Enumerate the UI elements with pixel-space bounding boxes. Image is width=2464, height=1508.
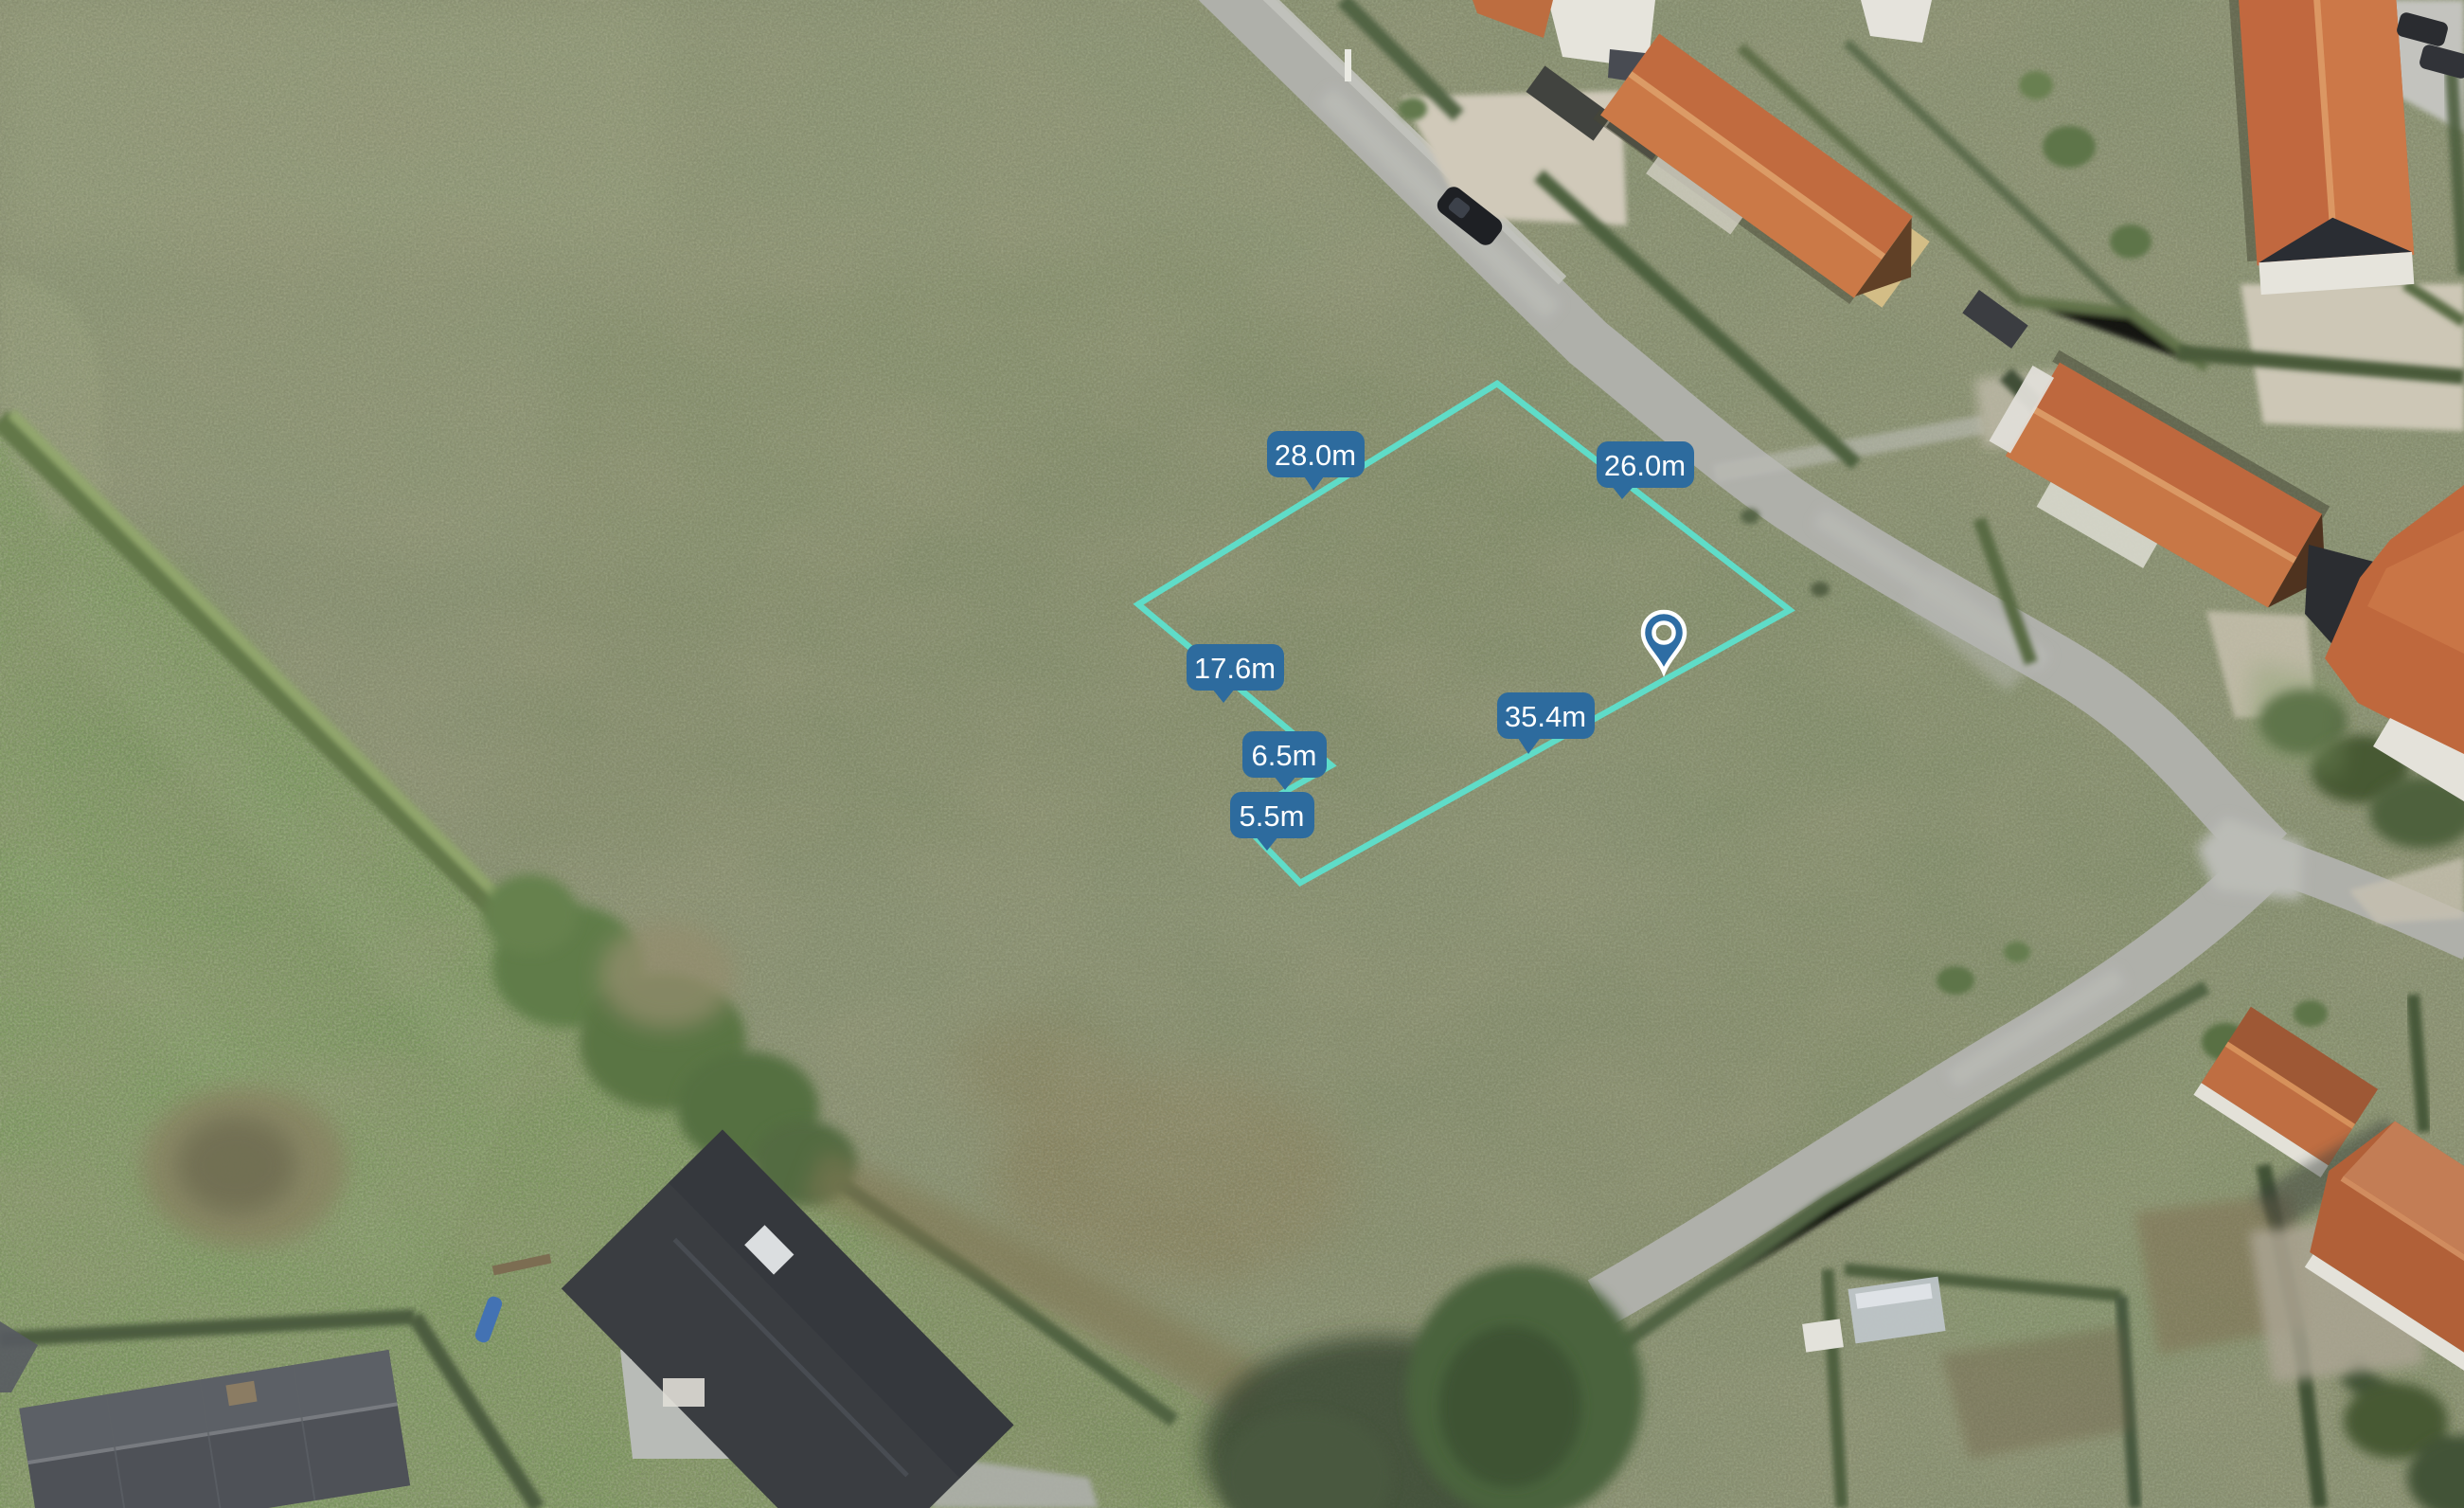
svg-text:17.6m: 17.6m bbox=[1194, 652, 1276, 685]
svg-text:28.0m: 28.0m bbox=[1275, 439, 1356, 472]
svg-text:35.4m: 35.4m bbox=[1505, 700, 1586, 733]
svg-text:26.0m: 26.0m bbox=[1604, 449, 1686, 482]
svg-text:6.5m: 6.5m bbox=[1252, 739, 1317, 772]
svg-text:5.5m: 5.5m bbox=[1240, 799, 1305, 833]
